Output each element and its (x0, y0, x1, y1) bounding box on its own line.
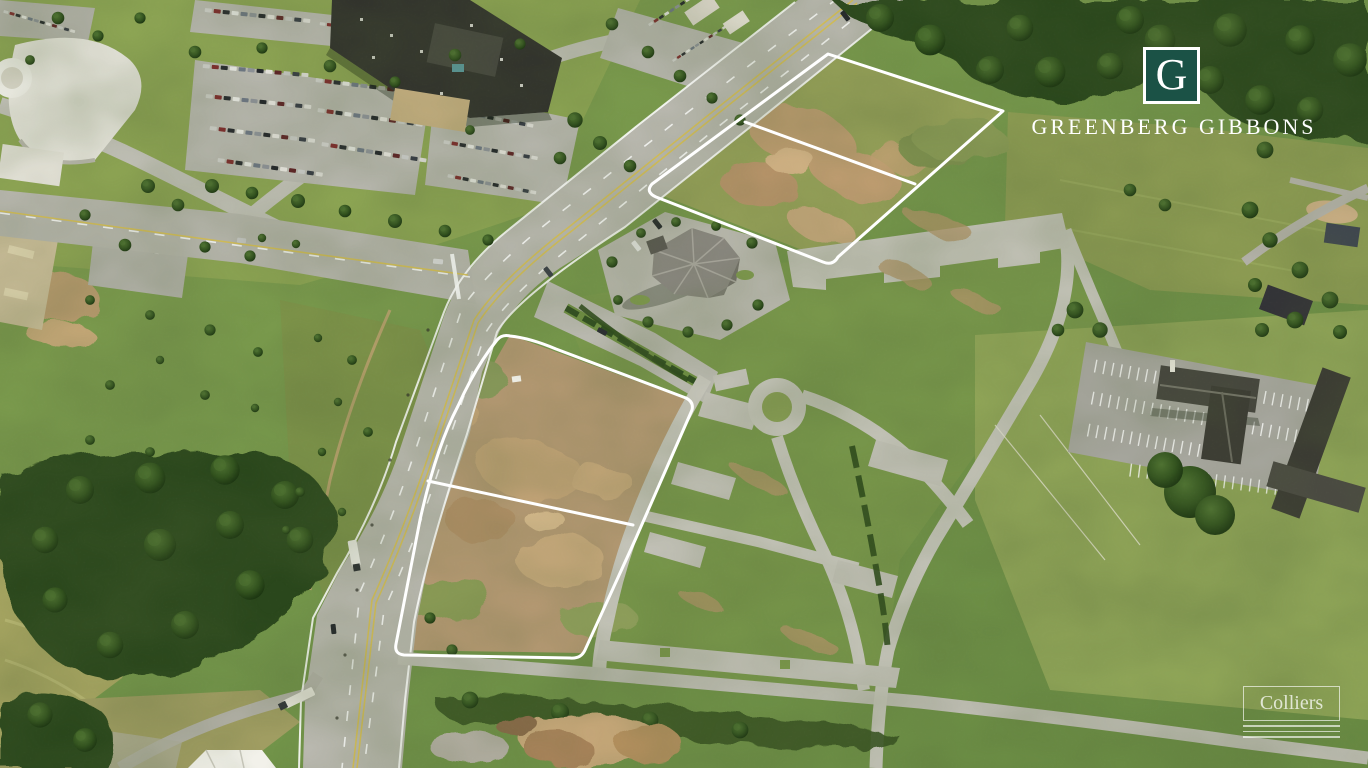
aerial-photo-canvas (0, 0, 1368, 768)
colliers-underline-1 (1243, 725, 1340, 727)
colliers-wordmark: Colliers (1243, 686, 1340, 721)
colliers-logo: Colliers (1243, 686, 1340, 738)
colliers-underline-3 (1243, 736, 1340, 738)
aerial-site-photo: G GREENBERG GIBBONS Colliers (0, 0, 1368, 768)
photo-grain (0, 0, 1368, 768)
colliers-underline-2 (1243, 731, 1340, 733)
